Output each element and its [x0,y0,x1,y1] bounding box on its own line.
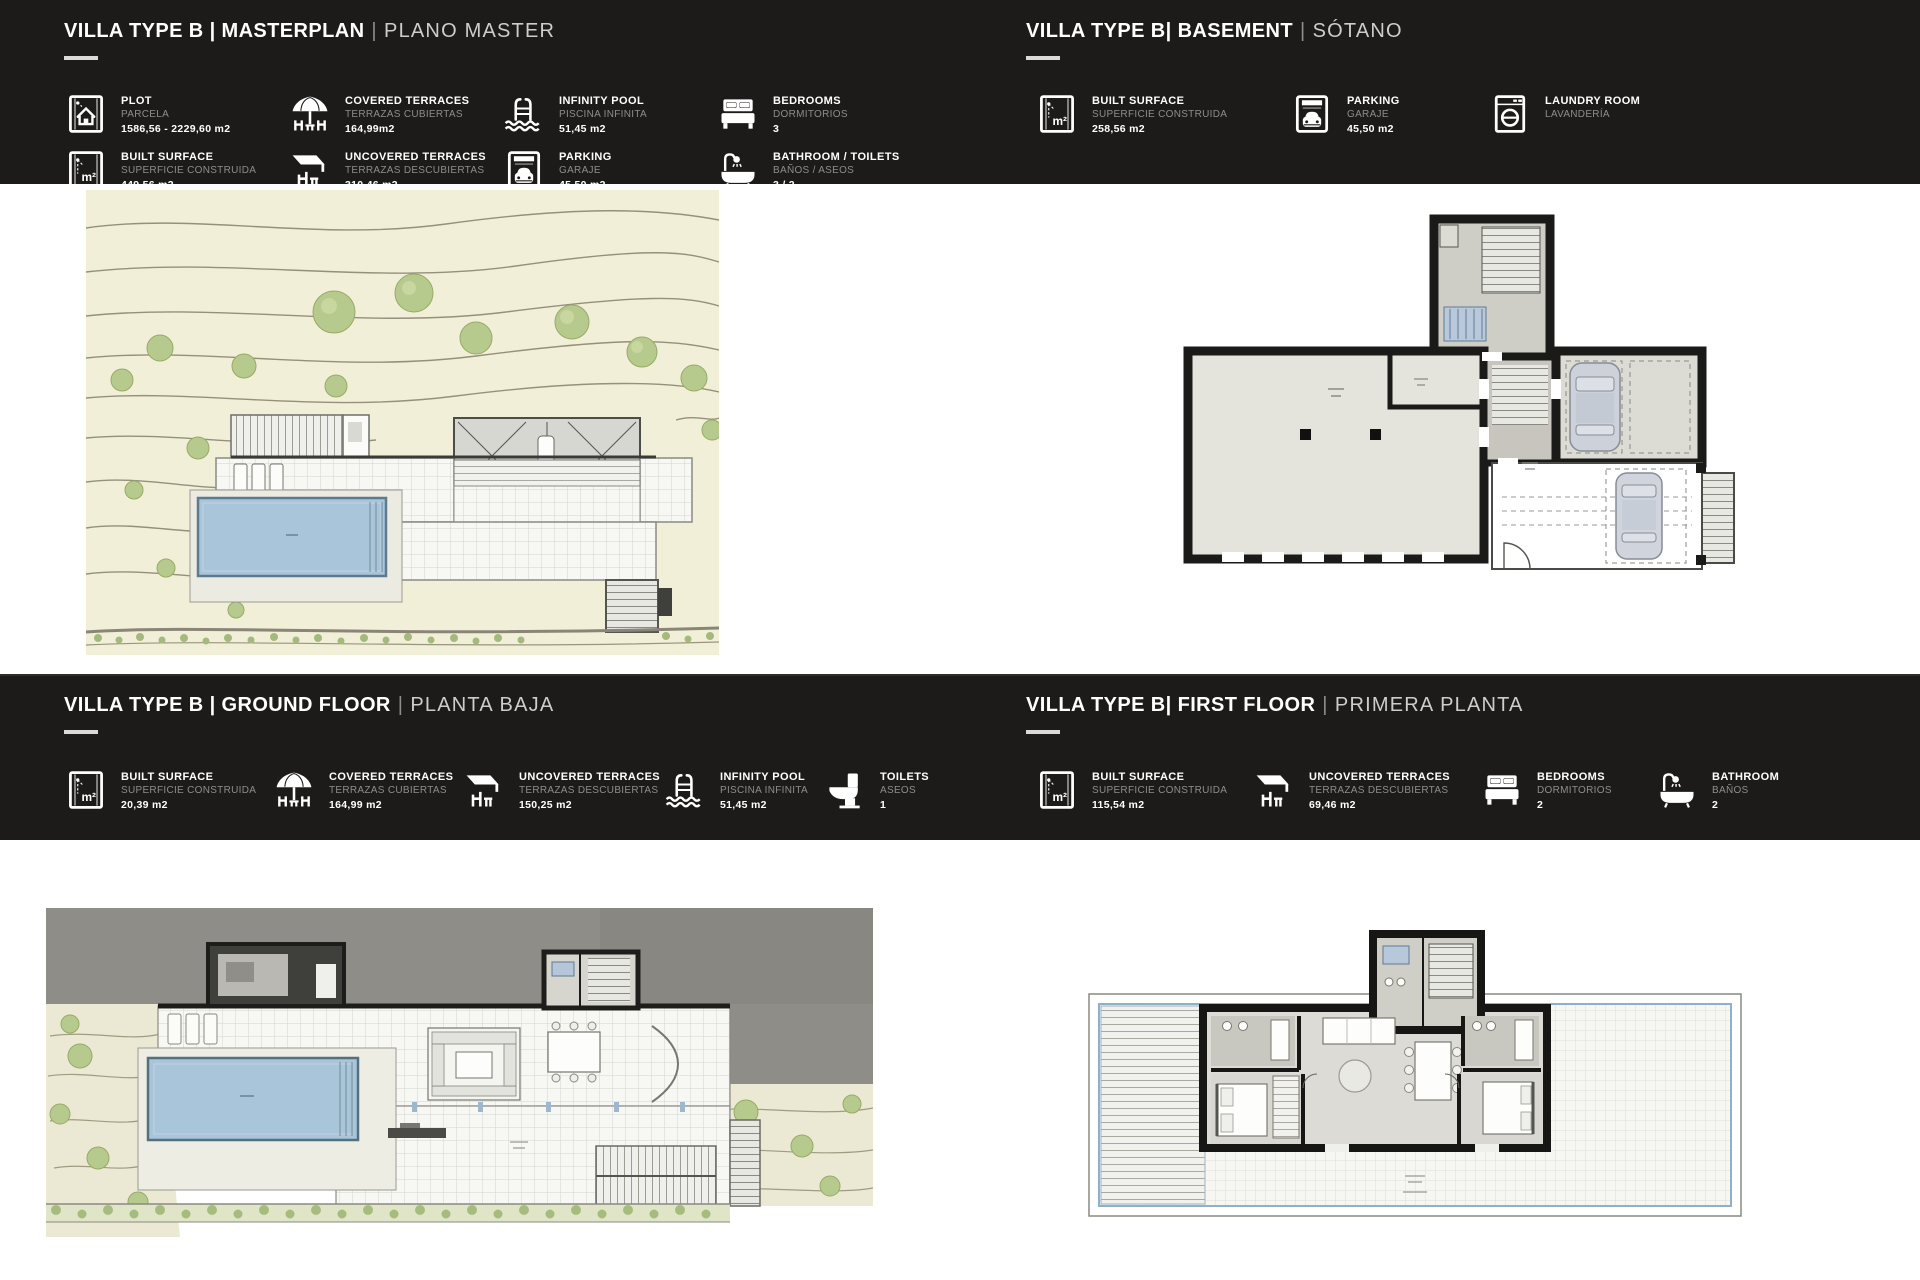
stat-label-es: ASEOS [880,785,929,796]
bathroom-icon [716,148,760,192]
stat-toilets: TOILETSASEOS1 [823,768,929,812]
uncovered-terrace-icon [1252,768,1296,812]
stat-uncovered-terraces: UNCOVERED TERRACESTERRAZAS DESCUBIERTAS6… [1252,768,1450,812]
stat-value: 45,50 m2 [1347,123,1400,135]
infinity-pool-icon [502,92,546,136]
stat-value: 164,99 m2 [329,799,453,811]
stat-value: 2 [1537,799,1612,811]
parking-icon [502,148,546,192]
stat-label: UNCOVERED TERRACES [519,771,660,783]
stat-value: 258,56 m2 [1092,123,1227,135]
title-underline [64,56,98,60]
stat-value: 69,46 m2 [1309,799,1450,811]
stat-value: 20,39 m2 [121,799,256,811]
stat-infinity-pool: INFINITY POOLPISCINA INFINITA51,45 m2 [663,768,808,812]
stat-value: 51,45 m2 [559,123,647,135]
title-separator: | [1300,20,1306,42]
stat-label: BATHROOM / TOILETS [773,151,900,163]
stat-label: BUILT SURFACE [1092,95,1227,107]
stat-label: PARKING [1347,95,1400,107]
title-main: VILLA TYPE B| FIRST FLOOR [1026,694,1315,716]
basement-plan-drawing [1182,211,1739,577]
stat-label-es: DORMITORIOS [773,109,848,120]
stat-bedrooms: BEDROOMSDORMITORIOS2 [1480,768,1612,812]
title-separator: | [1322,694,1328,716]
firstfloor-plan-drawing [1085,930,1745,1237]
stat-covered-terraces: COVERED TERRACESTERRAZAS CUBIERTAS164,99… [288,92,469,136]
stat-label-es: SUPERFICIE CONSTRUIDA [1092,785,1227,796]
stat-label-es: BAÑOS [1712,785,1779,796]
bedrooms-icon [716,92,760,136]
title-underline [1026,730,1060,734]
built-surface-icon [1035,92,1079,136]
stat-label: UNCOVERED TERRACES [1309,771,1450,783]
brochure-page: VILLA TYPE B | MASTERPLAN|PLANO MASTER P… [0,0,1920,1280]
stat-built-surface: BUILT SURFACESUPERFICIE CONSTRUIDA258,56… [1035,92,1227,136]
uncovered-terrace-icon [288,148,332,192]
stat-label-es: SUPERFICIE CONSTRUIDA [1092,109,1227,120]
plot-icon [64,92,108,136]
uncovered-terrace-icon [462,768,506,812]
built-surface-icon [64,148,108,192]
stat-label: INFINITY POOL [720,771,808,783]
stat-uncovered-terraces: UNCOVERED TERRACESTERRAZAS DESCUBIERTAS3… [288,148,486,192]
stat-value: 2 [1712,799,1779,811]
stat-label: TOILETS [880,771,929,783]
groundfloor-title: VILLA TYPE B | GROUND FLOOR|PLANTA BAJA [64,694,554,717]
stat-label: COVERED TERRACES [329,771,453,783]
stat-label-es: TERRAZAS DESCUBIERTAS [519,785,660,796]
masterplan-drawing [86,190,719,655]
stat-label-es: BAÑOS / ASEOS [773,165,900,176]
stat-covered-terraces: COVERED TERRACESTERRAZAS CUBIERTAS164,99… [272,768,453,812]
covered-terrace-icon [288,92,332,136]
stat-laundry-room: LAUNDRY ROOMLAVANDERÍA [1488,92,1640,136]
title-main: VILLA TYPE B| BASEMENT [1026,20,1293,42]
stat-label: BUILT SURFACE [1092,771,1227,783]
stat-parking: PARKINGGARAJE45,50 m2 [1290,92,1400,136]
stat-label: PLOT [121,95,230,107]
stat-value: 164,99m2 [345,123,469,135]
stat-built-surface: BUILT SURFACESUPERFICIE CONSTRUIDA449,56… [64,148,256,192]
title-sub: SÓTANO [1313,20,1403,42]
stat-label-es: DORMITORIOS [1537,785,1612,796]
stat-label: PARKING [559,151,612,163]
title-sub: PLANO MASTER [384,20,555,42]
stat-label-es: SUPERFICIE CONSTRUIDA [121,785,256,796]
stat-value: 115,54 m2 [1092,799,1227,811]
title-main: VILLA TYPE B | MASTERPLAN [64,20,364,42]
toilet-icon [823,768,867,812]
stat-uncovered-terraces: UNCOVERED TERRACESTERRAZAS DESCUBIERTAS1… [462,768,660,812]
title-sub: PRIMERA PLANTA [1335,694,1524,716]
infinity-pool-icon [663,768,707,812]
title-separator: | [371,20,377,42]
stat-parking: PARKINGGARAJE45,50 m2 [502,148,612,192]
stat-label: UNCOVERED TERRACES [345,151,486,163]
stat-bedrooms: BEDROOMSDORMITORIOS3 [716,92,848,136]
stat-label-es: LAVANDERÍA [1545,109,1640,120]
stat-value: 1586,56 - 2229,60 m2 [121,123,230,135]
built-surface-icon [64,768,108,812]
stat-label: INFINITY POOL [559,95,647,107]
title-underline [64,730,98,734]
stat-built-surface: BUILT SURFACESUPERFICIE CONSTRUIDA20,39 … [64,768,256,812]
basement-title: VILLA TYPE B| BASEMENT|SÓTANO [1026,20,1403,43]
stat-plot: PLOTPARCELA1586,56 - 2229,60 m2 [64,92,230,136]
stat-label-es: PARCELA [121,109,230,120]
stat-value: 3 / 2 [773,179,900,191]
stat-infinity-pool: INFINITY POOLPISCINA INFINITA51,45 m2 [502,92,647,136]
stat-label: LAUNDRY ROOM [1545,95,1640,107]
title-main: VILLA TYPE B | GROUND FLOOR [64,694,391,716]
stat-label-es: TERRAZAS DESCUBIERTAS [345,165,486,176]
stat-bathroom-toilets: BATHROOM / TOILETSBAÑOS / ASEOS3 / 2 [716,148,900,192]
built-surface-icon [1035,768,1079,812]
parking-icon [1290,92,1334,136]
stat-label: BUILT SURFACE [121,151,256,163]
stat-label: BEDROOMS [773,95,848,107]
title-separator: | [398,694,404,716]
groundfloor-plan-drawing [40,906,879,1237]
laundry-icon [1488,92,1532,136]
title-underline [1026,56,1060,60]
stat-label-es: GARAJE [1347,109,1400,120]
stat-bathroom: BATHROOMBAÑOS2 [1655,768,1779,812]
stat-label: BEDROOMS [1537,771,1612,783]
stat-label: BATHROOM [1712,771,1779,783]
stat-label: COVERED TERRACES [345,95,469,107]
stat-value: 51,45 m2 [720,799,808,811]
stat-label: BUILT SURFACE [121,771,256,783]
masterplan-title: VILLA TYPE B | MASTERPLAN|PLANO MASTER [64,20,555,43]
stat-label-es: TERRAZAS CUBIERTAS [345,109,469,120]
stat-value: 1 [880,799,929,811]
stat-label-es: GARAJE [559,165,612,176]
stat-value: 150,25 m2 [519,799,660,811]
stat-built-surface: BUILT SURFACESUPERFICIE CONSTRUIDA115,54… [1035,768,1227,812]
stat-label-es: PISCINA INFINITA [720,785,808,796]
stat-label-es: TERRAZAS DESCUBIERTAS [1309,785,1450,796]
bathroom-icon [1655,768,1699,812]
stat-label-es: TERRAZAS CUBIERTAS [329,785,453,796]
stat-value: 3 [773,123,848,135]
covered-terrace-icon [272,768,316,812]
title-sub: PLANTA BAJA [410,694,554,716]
firstfloor-title: VILLA TYPE B| FIRST FLOOR|PRIMERA PLANTA [1026,694,1524,717]
stat-label-es: SUPERFICIE CONSTRUIDA [121,165,256,176]
bedrooms-icon [1480,768,1524,812]
stat-label-es: PISCINA INFINITA [559,109,647,120]
